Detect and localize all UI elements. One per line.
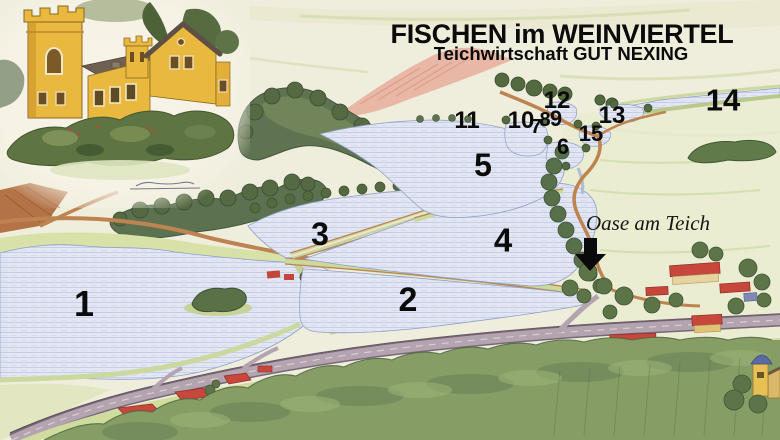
pond-label-6: 6 — [557, 136, 569, 158]
pond-label-4: 4 — [494, 224, 512, 257]
pond-label-3: 3 — [311, 218, 329, 250]
manor-tower — [24, 6, 84, 118]
pond-label-2: 2 — [399, 283, 418, 317]
map-subtitle: Teichwirtschaft GUT NEXING — [434, 45, 689, 64]
pond-label-12: 12 — [544, 89, 571, 113]
pond-label-11: 11 — [454, 109, 479, 133]
manor-illustration — [0, 0, 250, 208]
oase-am-teich-label: Oase am Teich — [586, 213, 710, 234]
pond-map: FISCHEN im WEINVIERTEL Teichwirtschaft G… — [0, 0, 780, 440]
pond-label-15: 15 — [579, 123, 603, 145]
pond-label-10: 10 — [508, 109, 535, 133]
pond-label-14: 14 — [706, 85, 740, 116]
pond-label-5: 5 — [474, 149, 492, 181]
pond-label-1: 1 — [74, 286, 94, 322]
